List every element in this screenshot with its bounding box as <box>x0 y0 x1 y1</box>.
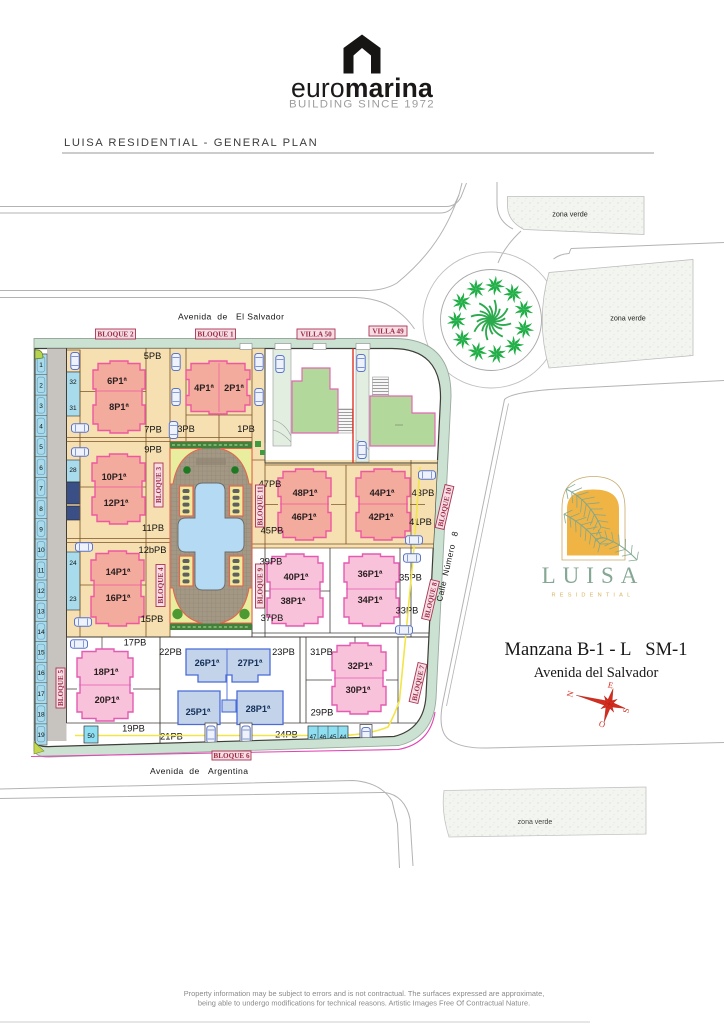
svg-text:23PB: 23PB <box>272 647 295 657</box>
svg-text:5PB: 5PB <box>144 351 162 361</box>
svg-text:Avenida de El Salvador: Avenida de El Salvador <box>178 312 284 322</box>
svg-text:VILLA 50: VILLA 50 <box>300 331 332 339</box>
svg-text:BLOQUE 3: BLOQUE 3 <box>155 467 163 504</box>
svg-text:10P1ª: 10P1ª <box>102 472 127 482</box>
svg-text:30P1ª: 30P1ª <box>346 685 371 695</box>
svg-text:4P1ª: 4P1ª <box>194 383 214 393</box>
svg-text:BLOQUE 2: BLOQUE 2 <box>97 331 134 339</box>
svg-text:46P1ª: 46P1ª <box>292 512 317 522</box>
svg-text:48P1ª: 48P1ª <box>293 488 318 498</box>
svg-text:15: 15 <box>37 650 45 657</box>
svg-text:16P1ª: 16P1ª <box>106 593 131 603</box>
svg-text:17PB: 17PB <box>124 638 147 648</box>
svg-text:1PB: 1PB <box>237 424 255 434</box>
svg-text:42P1ª: 42P1ª <box>369 512 394 522</box>
svg-text:3: 3 <box>39 403 43 410</box>
svg-text:zona verde: zona verde <box>518 819 553 826</box>
svg-text:9: 9 <box>39 526 43 533</box>
svg-text:24PB: 24PB <box>275 730 298 740</box>
svg-text:26P1ª: 26P1ª <box>195 658 220 668</box>
svg-text:28: 28 <box>69 467 77 474</box>
svg-text:15PB: 15PB <box>141 614 164 624</box>
svg-text:17: 17 <box>37 691 45 698</box>
svg-text:Avenida del Salvador: Avenida del Salvador <box>534 665 659 681</box>
svg-text:BLOQUE 4: BLOQUE 4 <box>157 567 165 604</box>
svg-text:32P1ª: 32P1ª <box>348 661 373 671</box>
svg-text:31PB: 31PB <box>310 647 333 657</box>
svg-text:50: 50 <box>87 733 95 740</box>
svg-text:14P1ª: 14P1ª <box>106 567 131 577</box>
svg-text:36P1ª: 36P1ª <box>358 569 383 579</box>
svg-text:3PB: 3PB <box>177 424 195 434</box>
svg-text:34P1ª: 34P1ª <box>358 595 383 605</box>
svg-text:LUISA: LUISA <box>542 563 645 588</box>
svg-text:10: 10 <box>37 547 45 554</box>
svg-text:31: 31 <box>69 405 77 412</box>
svg-text:43PB: 43PB <box>412 488 435 498</box>
svg-text:40P1ª: 40P1ª <box>284 572 309 582</box>
svg-text:11: 11 <box>38 568 45 575</box>
svg-text:9PB: 9PB <box>144 445 162 455</box>
svg-text:11PB: 11PB <box>142 523 164 533</box>
svg-text:8: 8 <box>39 506 43 513</box>
svg-text:Manzana B-1 - L SM-1: Manzana B-1 - L SM-1 <box>505 640 688 660</box>
svg-text:41PB: 41PB <box>409 517 432 527</box>
svg-text:32: 32 <box>69 379 77 386</box>
svg-text:zona verde: zona verde <box>552 210 588 219</box>
svg-text:23: 23 <box>69 596 77 603</box>
svg-text:28P1ª: 28P1ª <box>246 704 271 714</box>
svg-text:12: 12 <box>37 588 45 595</box>
svg-text:BUILDING SINCE 1972: BUILDING SINCE 1972 <box>289 99 435 111</box>
svg-text:4: 4 <box>39 424 43 431</box>
svg-text:24: 24 <box>69 560 77 567</box>
svg-text:14: 14 <box>37 629 45 636</box>
svg-text:20P1ª: 20P1ª <box>95 695 120 705</box>
svg-text:37PB: 37PB <box>261 613 284 623</box>
svg-text:6: 6 <box>39 465 43 472</box>
svg-text:5: 5 <box>39 444 43 451</box>
svg-text:BLOQUE 11: BLOQUE 11 <box>257 486 265 526</box>
svg-text:19PB: 19PB <box>122 724 145 734</box>
svg-text:38P1ª: 38P1ª <box>281 596 306 606</box>
svg-text:16: 16 <box>37 670 45 677</box>
svg-text:7PB: 7PB <box>144 425 162 435</box>
svg-text:44P1ª: 44P1ª <box>370 488 395 498</box>
svg-text:BLOQUE 1: BLOQUE 1 <box>197 331 234 339</box>
svg-text:2P1ª: 2P1ª <box>224 383 244 393</box>
svg-text:RESIDENTIAL: RESIDENTIAL <box>552 593 635 599</box>
svg-text:VILLA 49: VILLA 49 <box>372 328 404 336</box>
svg-text:25P1ª: 25P1ª <box>186 707 211 717</box>
svg-text:BLOQUE 9: BLOQUE 9 <box>257 568 265 605</box>
svg-text:2: 2 <box>39 383 43 390</box>
svg-text:being able to undergo modifica: being able to undergo modifications for … <box>198 999 530 1008</box>
svg-text:19: 19 <box>37 732 45 739</box>
svg-text:27P1ª: 27P1ª <box>238 658 263 668</box>
svg-text:Property information may be su: Property information may be subject to e… <box>184 989 545 998</box>
svg-text:22PB: 22PB <box>159 647 182 657</box>
svg-text:BLOQUE 6: BLOQUE 6 <box>213 752 250 760</box>
svg-text:BLOQUE 5: BLOQUE 5 <box>57 670 65 707</box>
svg-text:1: 1 <box>39 362 43 369</box>
svg-text:7: 7 <box>39 485 43 492</box>
svg-text:6P1ª: 6P1ª <box>107 376 127 386</box>
svg-text:zona verde: zona verde <box>610 314 646 323</box>
svg-text:18: 18 <box>37 711 45 718</box>
svg-text:21PB: 21PB <box>160 732 183 742</box>
svg-text:LUISA RESIDENTIAL - GENERAL PL: LUISA RESIDENTIAL - GENERAL PLAN <box>64 137 318 149</box>
svg-text:8P1ª: 8P1ª <box>109 402 129 412</box>
svg-text:12P1ª: 12P1ª <box>104 498 129 508</box>
svg-text:Avenida de Argentina: Avenida de Argentina <box>150 766 248 776</box>
svg-text:18P1ª: 18P1ª <box>94 667 119 677</box>
svg-text:13: 13 <box>37 609 45 616</box>
svg-text:12bPB: 12bPB <box>139 545 167 555</box>
svg-text:29PB: 29PB <box>311 708 334 718</box>
